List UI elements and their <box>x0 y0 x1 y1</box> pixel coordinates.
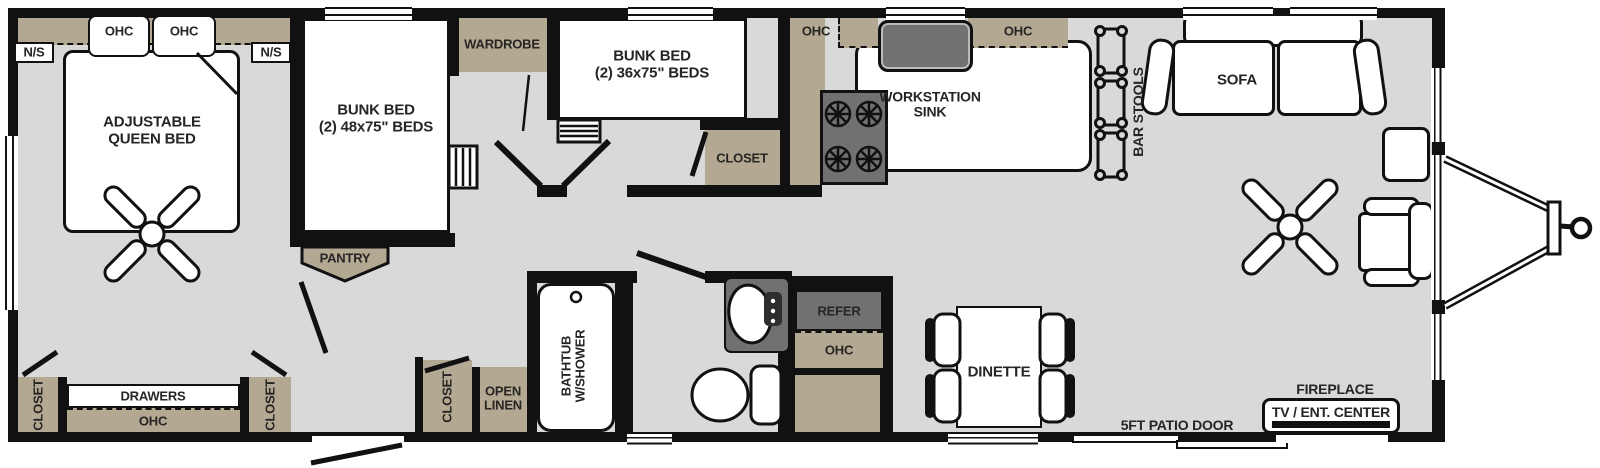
hall-door-swing-right <box>563 141 609 186</box>
closet-right-door-swing <box>252 352 286 375</box>
fireplace-insert <box>1272 421 1390 428</box>
ceiling-fan-icon <box>101 183 202 284</box>
sofa-pillow-right <box>1353 39 1387 116</box>
bar-stool-icon <box>1096 27 1127 76</box>
patio-door-label: 5FT PATIO DOOR <box>1121 417 1234 433</box>
refer-label: REFER <box>817 304 860 319</box>
bathtub-label: BATHTUBW/SHOWER <box>560 330 589 403</box>
closet-label: CLOSET <box>716 151 768 166</box>
ceiling-fan-icon <box>1239 176 1340 277</box>
ohc-label: OHC <box>139 414 167 429</box>
closet-label: CLOSET <box>263 379 278 431</box>
bathroom-door-swing <box>637 253 706 277</box>
bunk-bed-36-label: BUNK BED(2) 36x75" BEDS <box>595 49 709 82</box>
bunk2-closet-door-swing <box>692 132 706 176</box>
fireplace-label: FIREPLACE <box>1296 381 1374 397</box>
closet-left-door-swing <box>23 352 57 375</box>
bar-stool-icon <box>1096 79 1127 128</box>
sofa-label: SOFA <box>1217 72 1257 89</box>
queen-bed-label: ADJUSTABLEQUEEN BED <box>103 115 201 148</box>
ns-label: N/S <box>260 45 281 60</box>
ns-label: N/S <box>23 45 44 60</box>
burner-icon <box>826 102 881 171</box>
bathroom-sink-icon <box>725 278 789 352</box>
bedroom-door-swing <box>301 282 326 353</box>
dinette-label: DINETTE <box>968 364 1031 381</box>
linework-overlay <box>0 0 1600 468</box>
bunk-ladder-icon <box>449 146 477 188</box>
trailer-hitch-icon <box>1445 159 1590 306</box>
bed-fold-line <box>197 53 237 94</box>
wardrobe-label: WARDROBE <box>464 37 540 52</box>
toilet-icon <box>692 366 781 424</box>
wardrobe-door-swing <box>523 75 529 131</box>
sofa-pillow-left <box>1141 39 1175 116</box>
ohc-label: OHC <box>170 24 198 39</box>
workstation-sink-label: WORKSTATIONSINK <box>879 90 981 121</box>
closet-label: CLOSET <box>440 371 455 423</box>
drawers-label: DRAWERS <box>120 389 185 404</box>
ohc-label: OHC <box>802 24 830 39</box>
closet-label: CLOSET <box>31 379 46 431</box>
bar-stools-label: BAR STOOLS <box>1130 67 1146 157</box>
tv-ent-center-label: TV / ENT. CENTER <box>1272 404 1390 420</box>
hall-door-swing-left <box>496 142 541 186</box>
bar-stool-icon <box>1096 131 1127 180</box>
tub-drain-icon <box>571 292 581 302</box>
ohc-label: OHC <box>105 24 133 39</box>
rv-floorplan: OHC OHC N/S N/S ADJUSTABLEQUEEN BED CLOS… <box>0 0 1600 468</box>
ohc-label: OHC <box>1004 24 1032 39</box>
hall-closet-door-swing <box>425 358 469 371</box>
bunk-ladder-icon <box>558 120 600 142</box>
ohc-label: OHC <box>825 343 853 358</box>
bunk-bed-48-label: BUNK BED(2) 48x75" BEDS <box>319 103 433 136</box>
entry-door-swing <box>311 445 402 463</box>
open-linen-label: OPENLINEN <box>484 385 522 414</box>
pantry-label: PANTRY <box>320 251 371 266</box>
